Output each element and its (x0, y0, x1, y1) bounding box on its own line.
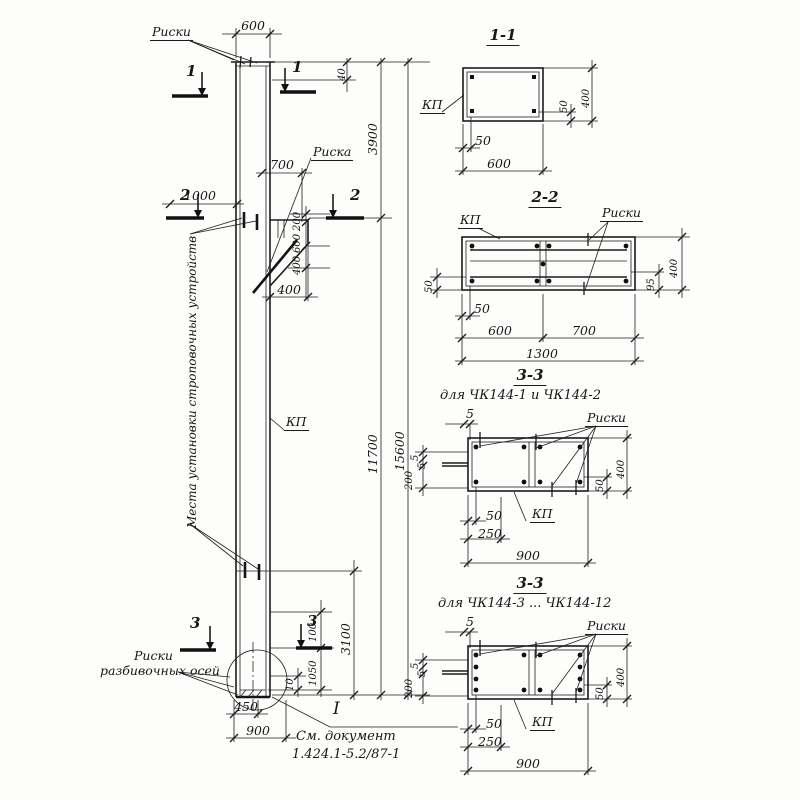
dim-900-base: 900 (246, 725, 270, 738)
datum-mark-i: I (333, 701, 340, 718)
section-mark-3-right-label: 3 (307, 614, 317, 629)
section-3-3b-title: 3-3 (513, 576, 546, 594)
drawing-linework (0, 0, 800, 800)
section-mark-3-left-label: 3 (190, 616, 200, 631)
section-3-3b-view (415, 628, 632, 775)
section-mark-1-left-label: 1 (186, 64, 196, 79)
dim-1-1-50-right: 50 (560, 100, 570, 113)
strop-places-note: Места установки строповочных устройств (186, 236, 198, 528)
dim-40: 40 (338, 68, 348, 81)
dim-3-3b-50-bottom: 50 (486, 718, 502, 731)
riski-label-2-2: Риски (600, 207, 643, 222)
dim-corbel-200: 200 (293, 212, 303, 231)
dim-3-3b-900: 900 (516, 758, 540, 771)
section-mark-2-right-label: 2 (350, 188, 360, 203)
section-3-3a-subtitle: для ЧК144-1 и ЧК144-2 (440, 389, 601, 402)
dim-400-corbel: 400 (277, 284, 301, 297)
section-2-2-view (430, 222, 690, 365)
dim-2-2-50-bottom: 50 (474, 303, 490, 316)
doc-note-line1: См. документ (296, 730, 396, 743)
dim-3-3a-400: 400 (617, 460, 627, 479)
dim-3-3b-250: 250 (478, 736, 502, 749)
dim-3-3b-50-right: 50 (596, 687, 606, 700)
dim-11700: 11700 (367, 434, 380, 474)
dim-3-3a-250: 250 (478, 528, 502, 541)
dim-3100: 3100 (340, 623, 353, 655)
dim-3-3a-900: 900 (516, 550, 540, 563)
kp-label-3-3b: КП (530, 716, 555, 731)
dim-2-2-700: 700 (572, 325, 596, 338)
section-3-3b-subtitle: для ЧК144-3 ... ЧК144-12 (438, 597, 611, 610)
section-mark-2-left-label: 2 (180, 188, 190, 203)
dim-3-3a-5b: 5 (418, 463, 428, 469)
riski-top-label: Риски (150, 26, 193, 41)
axes-riski-line2: разбивочных осей (100, 665, 220, 678)
dim-1-1-600: 600 (487, 158, 511, 171)
riski-label-3-3a: Риски (585, 412, 628, 427)
dim-1-1-400: 400 (582, 89, 592, 108)
dim-1-1-50-bottom: 50 (475, 135, 491, 148)
dim-3-3a-50-bottom: 50 (486, 510, 502, 523)
dim-3-3b-5b: 5 (418, 671, 428, 677)
dim-3-3a-200: 200 (405, 471, 415, 490)
dim-10: 10 (286, 678, 296, 691)
dim-2-2-1300: 1300 (526, 348, 558, 361)
kp-label-3-3a: КП (530, 508, 555, 523)
section-3-3a-title: 3-3 (513, 368, 546, 386)
section-1-1-title: 1-1 (486, 28, 519, 46)
section-2-2-title: 2-2 (528, 190, 561, 208)
dim-2-2-400: 400 (670, 259, 680, 278)
dim-2-2-95: 95 (647, 278, 657, 291)
elevation-dimensions (162, 28, 430, 742)
dim-3-3a-50-right: 50 (596, 479, 606, 492)
kp-elevation-label: КП (284, 416, 309, 431)
dim-2-2-50-left: 50 (425, 280, 435, 293)
drawing-sheet: Риски 600 1 1 40 3900 1000 700 Риска 2 2… (0, 0, 800, 800)
dim-3-3a-5-top: 5 (466, 408, 474, 421)
dim-1050: 1050 (309, 661, 319, 686)
dim-15600: 15600 (394, 431, 407, 471)
dim-450: 450 (234, 701, 258, 714)
dim-3-3b-400: 400 (617, 668, 627, 687)
dim-corbel-600: 600 (293, 234, 303, 253)
dim-700: 700 (270, 159, 294, 172)
section-mark-1-right-label: 1 (292, 60, 302, 75)
kp-label-1-1: КП (420, 99, 445, 114)
dim-corbel-400: 400 (293, 256, 303, 275)
kp-label-2-2: КП (458, 214, 483, 229)
axes-riski-line1: Риски (134, 650, 173, 663)
riska-label: Риска (311, 146, 353, 161)
dim-3-3b-200: 200 (405, 679, 415, 698)
doc-note-line2: 1.424.1-5.2/87-1 (292, 748, 400, 761)
section-3-3a-view (415, 420, 632, 567)
section-1-1-view (442, 60, 598, 175)
dim-3-3b-5-top: 5 (466, 616, 474, 629)
riski-label-3-3b: Риски (585, 620, 628, 635)
dim-2-2-600: 600 (488, 325, 512, 338)
dim-3-3a-5a: 5 (411, 455, 421, 461)
dim-600-top: 600 (241, 20, 265, 33)
dim-3900: 3900 (367, 123, 380, 155)
dim-3-3b-5a: 5 (411, 663, 421, 669)
